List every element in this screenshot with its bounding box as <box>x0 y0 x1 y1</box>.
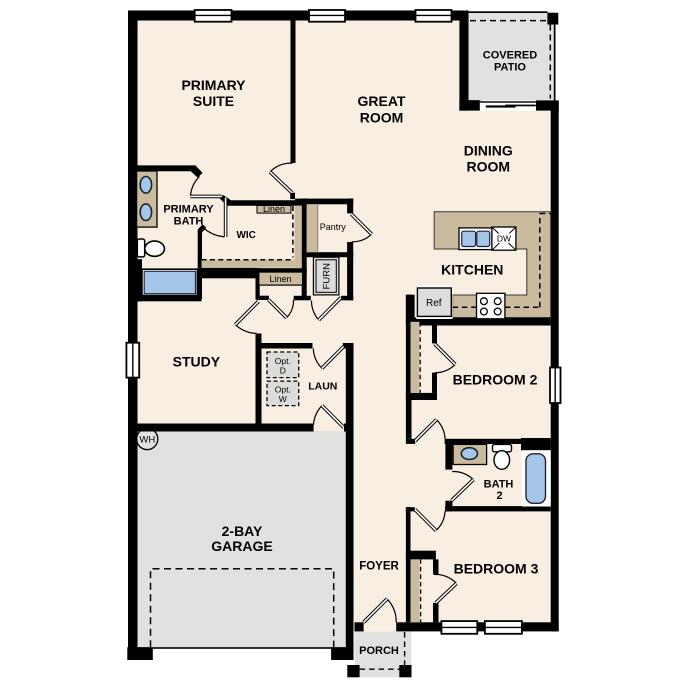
svg-text:PRIMARY: PRIMARY <box>181 77 246 93</box>
svg-text:WIC: WIC <box>236 230 255 241</box>
svg-text:KITCHEN: KITCHEN <box>441 262 503 278</box>
svg-text:PORCH: PORCH <box>359 645 399 657</box>
svg-text:LAUN: LAUN <box>308 381 337 393</box>
svg-text:2: 2 <box>496 490 502 502</box>
svg-text:WH: WH <box>139 434 155 445</box>
svg-text:FURN: FURN <box>322 263 333 290</box>
svg-text:COVERED: COVERED <box>483 50 537 62</box>
svg-text:BATH: BATH <box>484 478 514 490</box>
svg-text:GARAGE: GARAGE <box>211 538 272 554</box>
svg-text:Pantry: Pantry <box>320 222 347 232</box>
svg-text:D: D <box>280 366 286 376</box>
svg-text:PRIMARY: PRIMARY <box>163 204 214 216</box>
svg-text:Opt.: Opt. <box>275 356 291 366</box>
svg-text:Opt.: Opt. <box>275 385 291 395</box>
svg-text:ROOM: ROOM <box>360 110 404 126</box>
svg-text:2-BAY: 2-BAY <box>222 523 263 539</box>
svg-text:BEDROOM 2: BEDROOM 2 <box>453 372 538 388</box>
svg-text:SUITE: SUITE <box>193 93 234 109</box>
svg-text:BATH: BATH <box>174 216 204 228</box>
svg-text:BEDROOM 3: BEDROOM 3 <box>454 561 539 577</box>
svg-text:Linen: Linen <box>269 274 291 284</box>
svg-text:Ref: Ref <box>426 298 442 309</box>
svg-text:Linen: Linen <box>263 204 285 214</box>
svg-text:DW: DW <box>497 234 511 244</box>
svg-text:DINING: DINING <box>464 143 513 159</box>
svg-text:GREAT: GREAT <box>358 93 406 109</box>
svg-text:PATIO: PATIO <box>494 62 526 74</box>
svg-text:W: W <box>279 394 287 404</box>
svg-text:ROOM: ROOM <box>467 158 511 174</box>
svg-text:FOYER: FOYER <box>359 561 399 573</box>
svg-text:STUDY: STUDY <box>173 353 221 369</box>
